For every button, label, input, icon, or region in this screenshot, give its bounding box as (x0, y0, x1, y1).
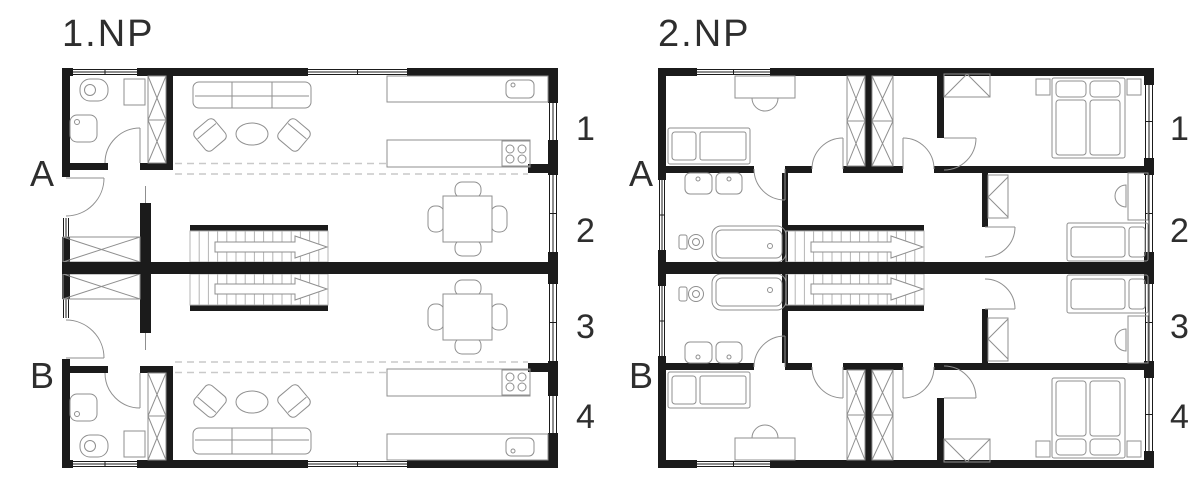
single-bed (1067, 223, 1148, 261)
small-bedroom (988, 173, 1148, 261)
bathtub (712, 226, 786, 262)
plan-2np-title: 2.NP (658, 13, 750, 55)
plan-2np-row-label-a: A (629, 153, 653, 194)
kitchen-sink (506, 80, 534, 98)
plan-1np-unit-a (62, 68, 558, 262)
bed-pillow (1129, 227, 1145, 257)
plan-1np-room-number-4: 4 (576, 398, 595, 436)
single-bed (668, 128, 750, 164)
bathtub-drain (768, 244, 773, 249)
plan-1np (62, 68, 558, 468)
plan-2np-unit-a (658, 68, 1154, 262)
plan-2np (658, 68, 1154, 468)
bedroom-wardrobe (988, 175, 1008, 218)
small-bedroom-door (985, 227, 1015, 257)
party-wall (658, 262, 1154, 274)
cooktop (502, 141, 530, 166)
staircase (786, 225, 924, 262)
toilet (689, 235, 704, 250)
plan-2np-room-number-2: 2 (1170, 212, 1189, 250)
plan-1np-row-label-b: B (30, 355, 54, 396)
desk (735, 76, 795, 98)
study-room-door (812, 138, 843, 169)
bed-pillow (1056, 81, 1086, 97)
toilet-bowl (85, 85, 96, 96)
plan-2np-unit-b (658, 274, 1154, 468)
plan-2np-room-number-3: 3 (1170, 308, 1189, 346)
living-room-set (192, 82, 313, 153)
sink-faucet (75, 120, 80, 125)
double-bed (1052, 78, 1125, 158)
desk-chair (752, 98, 778, 111)
bathroom-sink (70, 115, 97, 142)
master-bedroom-door (944, 138, 976, 170)
bathroom-door (105, 128, 140, 163)
dining-set (428, 182, 507, 256)
storage-closet (63, 237, 140, 262)
wardrobe (148, 76, 166, 163)
plan-2np-row-label-b: B (629, 355, 653, 396)
master-bedroom (944, 74, 1141, 158)
toilet-tank (679, 235, 687, 249)
bed-pillow (672, 132, 696, 160)
bedroom-wardrobe (944, 74, 990, 97)
floor-plans-figure: 1.NP A B 1 2 3 4 (0, 0, 1200, 497)
nightstand (1036, 79, 1050, 95)
bathroom-sink (685, 173, 712, 194)
nightstand (1127, 79, 1141, 95)
corridor-door (903, 138, 934, 169)
plan-1np-room-number-1: 1 (576, 110, 595, 148)
bathroom-sink (716, 173, 742, 194)
plan-1np-room-number-3: 3 (576, 308, 595, 346)
floor-plan-drawing: 1.NP A B 1 2 3 4 (0, 0, 1200, 497)
desk-chair (1115, 185, 1126, 207)
plan-1np-row-label-a: A (30, 153, 54, 194)
plan-1np-room-number-2: 2 (576, 212, 595, 250)
plan-1np-unit-b (62, 274, 558, 468)
bathroom (70, 79, 145, 142)
bathroom-2np (679, 173, 786, 262)
staircase (190, 225, 328, 262)
study-room (668, 76, 795, 164)
bed-pillow (1090, 81, 1120, 97)
plan-2np-room-number-4: 4 (1170, 398, 1189, 436)
entry-door (66, 178, 104, 216)
plan-2np-room-number-1: 1 (1170, 110, 1189, 148)
kitchen-faucet (511, 83, 515, 87)
washer (124, 79, 145, 105)
plan-1np-title: 1.NP (62, 13, 154, 55)
bathroom-door-2np (754, 169, 785, 200)
party-wall (62, 262, 558, 274)
kitchen (387, 76, 548, 167)
